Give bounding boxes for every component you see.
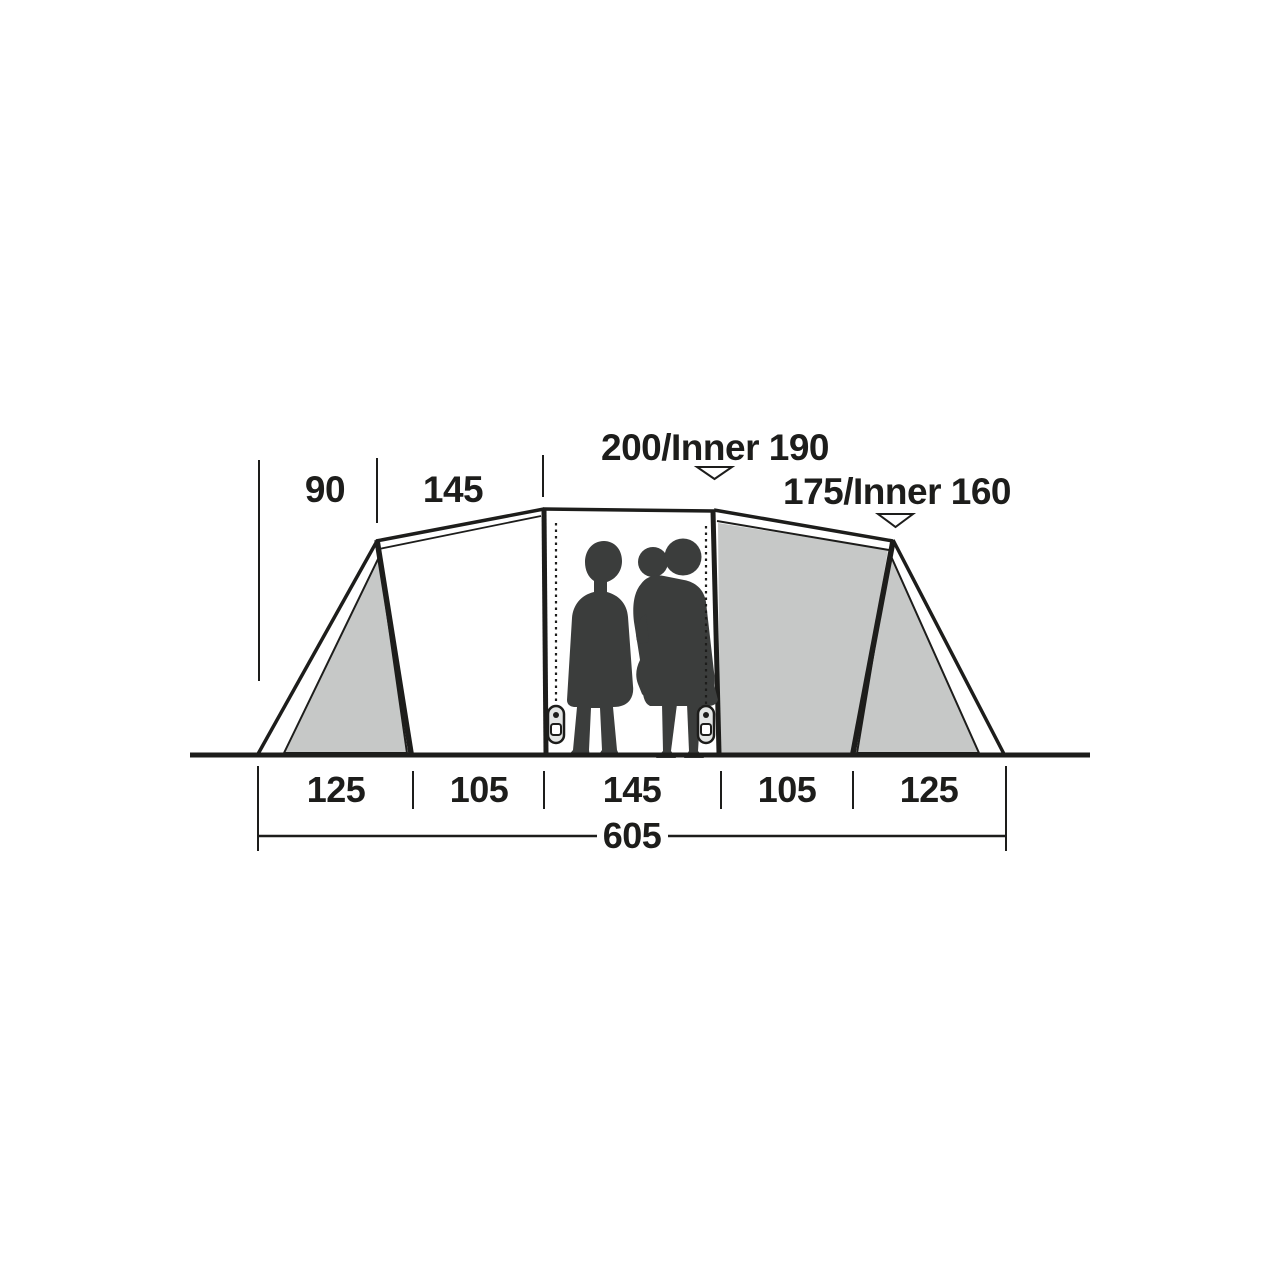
base-segment-145-center: 145	[603, 769, 662, 810]
label-width-145: 145	[423, 469, 483, 510]
left-ridge-line	[376, 509, 544, 541]
zipper-pull-right	[698, 706, 714, 743]
adult-right-leg-front	[662, 704, 677, 751]
label-bedroom-height: 175/Inner 160	[783, 471, 1011, 512]
people-silhouettes	[567, 539, 718, 759]
door-left-frame	[544, 509, 546, 753]
child-head	[638, 547, 668, 577]
base-segment-125-left: 125	[307, 769, 366, 810]
center-height-arrow-icon	[697, 467, 732, 479]
zipper-pull-left	[548, 706, 564, 743]
adult-left-silhouette	[567, 541, 633, 757]
label-width-90: 90	[305, 469, 345, 510]
tent-dimensions-diagram: 90 145 200/Inner 190 175/Inner 160 125 1…	[0, 0, 1280, 1280]
base-segment-105-left: 105	[450, 769, 509, 810]
label-center-height: 200/Inner 190	[601, 427, 829, 468]
total-length-label: 605	[603, 815, 662, 856]
diagram-canvas: 90 145 200/Inner 190 175/Inner 160 125 1…	[0, 0, 1280, 1280]
top-dimension-ticks	[259, 455, 543, 681]
base-segment-105-right: 105	[758, 769, 817, 810]
left-ridge-inner-line	[379, 516, 541, 549]
bedroom-height-arrow-icon	[878, 514, 913, 527]
adult-right-head	[665, 539, 702, 576]
door-top-edge	[543, 509, 714, 511]
left-end-panel	[284, 557, 407, 753]
base-segment-125-right: 125	[900, 769, 959, 810]
